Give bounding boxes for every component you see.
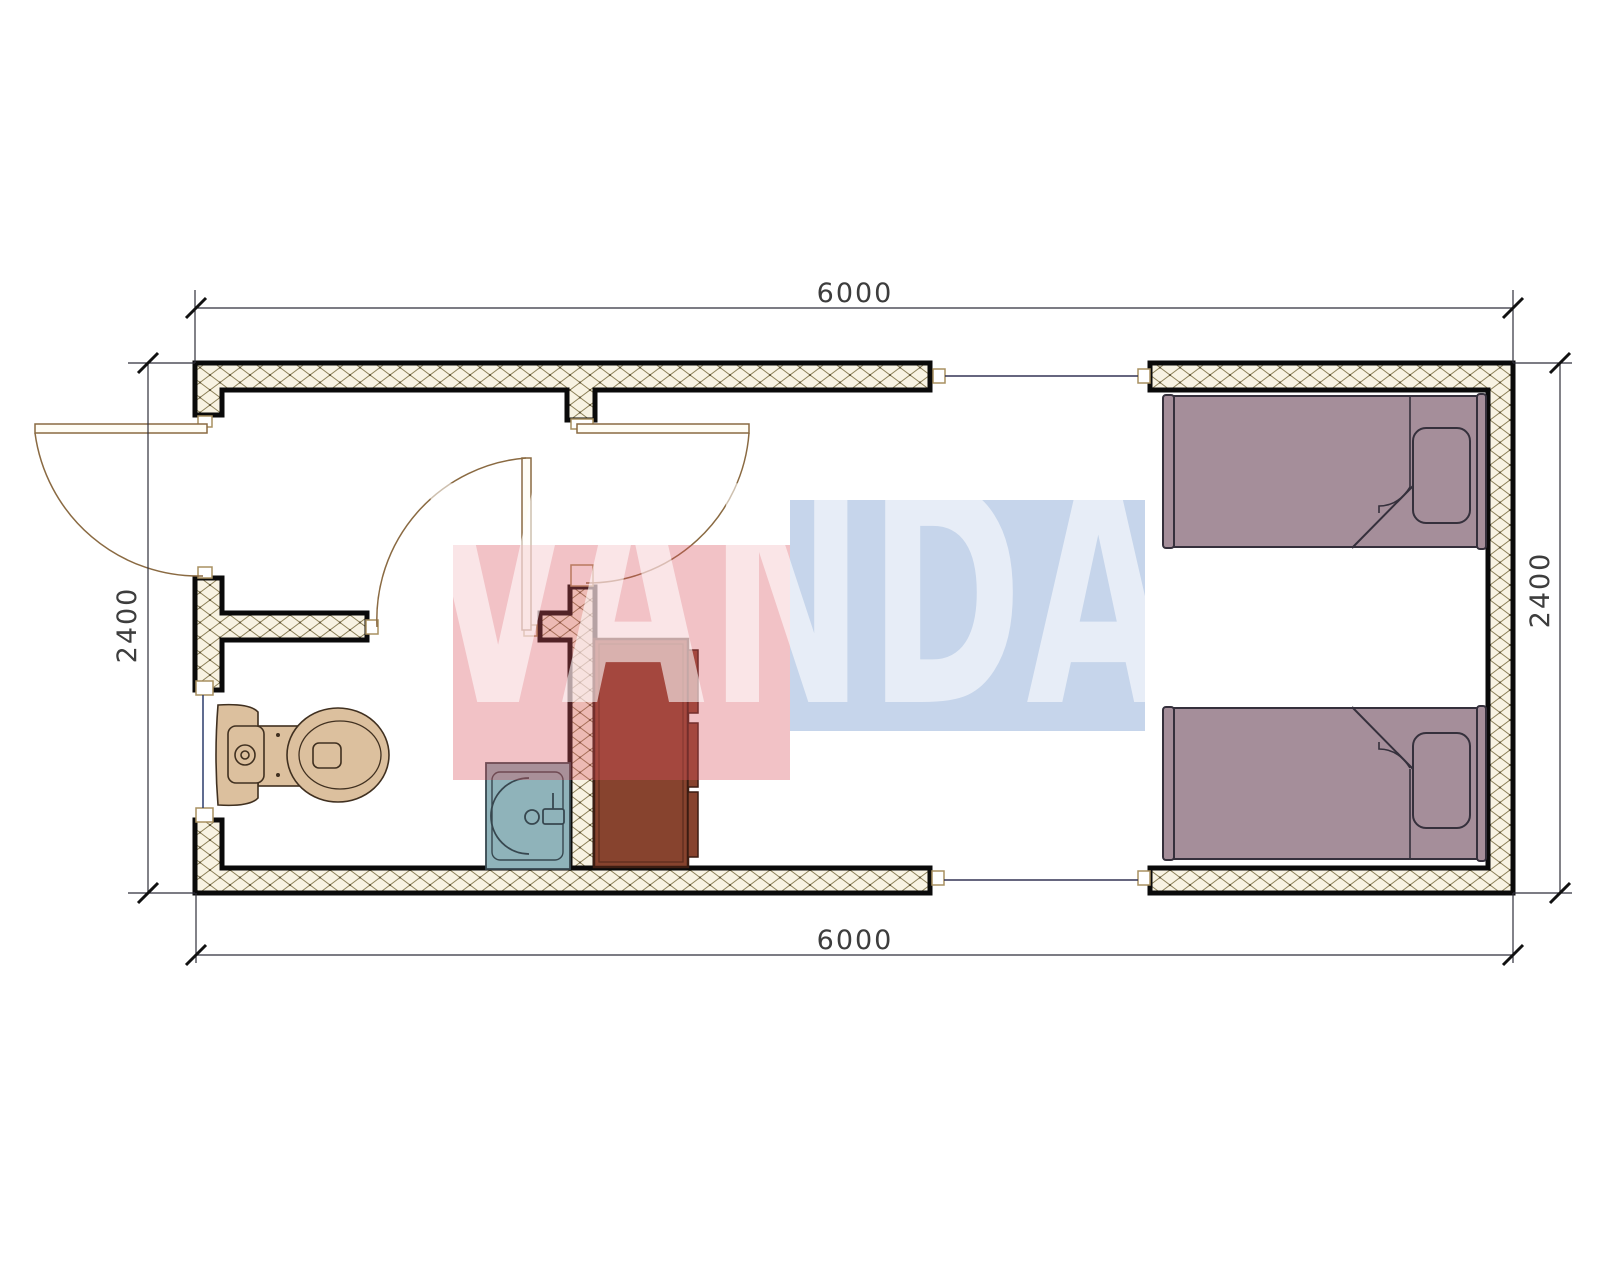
dim-label-left: 2400 bbox=[112, 587, 143, 664]
toilet-drain bbox=[313, 743, 341, 768]
floor-plan-page: 6000 6000 2400 2400 VANDA bbox=[0, 0, 1600, 1280]
module-joint-cap-bottom-right bbox=[1138, 871, 1150, 885]
bed-bottom bbox=[1163, 706, 1486, 861]
watermark-text: VANDA bbox=[426, 423, 1174, 773]
wall-bathroom-partition bbox=[195, 578, 367, 690]
dim-label-bottom: 6000 bbox=[817, 925, 894, 956]
window-jamb-top bbox=[196, 681, 213, 695]
entry-door-swing-arc bbox=[35, 433, 203, 576]
module-joint-cap-bottom-left bbox=[932, 871, 944, 885]
floor-plan-drawing: 6000 6000 2400 2400 VANDA bbox=[0, 0, 1600, 1280]
module-joint-cap-top-left bbox=[933, 369, 945, 383]
bed-top-pillow bbox=[1413, 428, 1470, 523]
bed-bottom-head-bar bbox=[1477, 706, 1486, 861]
toilet bbox=[216, 705, 389, 806]
bed-top-head-bar bbox=[1477, 394, 1486, 549]
dim-label-right: 2400 bbox=[1525, 552, 1556, 629]
cabinet-door-panel-3 bbox=[688, 792, 698, 857]
toilet-flush-button-inner bbox=[241, 751, 249, 759]
module-joint-cap-top-right bbox=[1138, 369, 1150, 383]
window-jamb-bottom bbox=[196, 808, 213, 822]
wall-top-left-module bbox=[195, 363, 930, 420]
entry-door bbox=[35, 424, 207, 576]
toilet-seat-hinge-bottom bbox=[276, 773, 280, 777]
bed-bottom-pillow bbox=[1413, 733, 1470, 828]
bed-top bbox=[1163, 394, 1486, 549]
dim-label-top: 6000 bbox=[817, 278, 894, 309]
toilet-seat-hinge-top bbox=[276, 733, 280, 737]
beds bbox=[1163, 394, 1486, 861]
faucet-spout-icon bbox=[543, 809, 564, 824]
entry-door-leaf bbox=[35, 424, 207, 433]
watermark: VANDA bbox=[426, 423, 1174, 780]
faucet-knob-icon bbox=[525, 810, 539, 824]
